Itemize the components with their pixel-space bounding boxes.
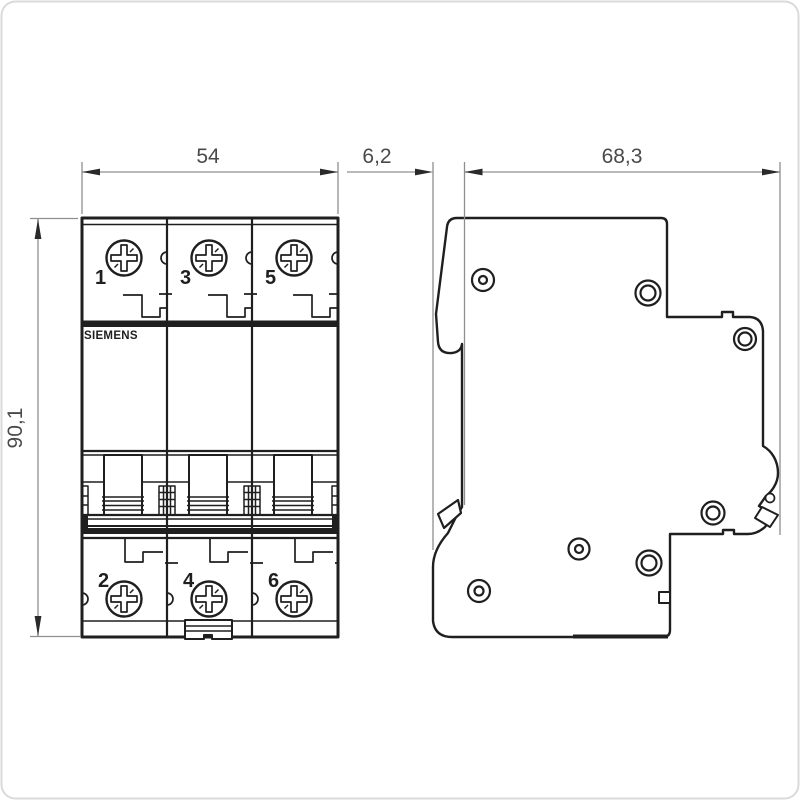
terminal-label-2: 2 [98, 570, 109, 592]
toggle-pivot [766, 494, 775, 503]
dim-rail-depth-label: 6,2 [362, 145, 391, 168]
front-outline [82, 218, 338, 637]
terminal-label-6: 6 [268, 570, 279, 592]
terminal-label-4: 4 [183, 570, 195, 592]
dim-front-height-label: 90,1 [4, 408, 27, 449]
breaker-dimension-drawing: 1 3 5 SIEMENS [0, 0, 800, 800]
dim-total-depth-label: 68,3 [602, 145, 643, 168]
dimension-front-width: 54 [82, 145, 338, 214]
terminal-label-3: 3 [180, 267, 191, 289]
side-tab [659, 592, 670, 603]
terminal-label-5: 5 [265, 267, 276, 289]
terminal-label-1: 1 [95, 267, 106, 289]
side-view [433, 218, 778, 637]
front-top-band [83, 321, 337, 328]
dimension-front-height: 90,1 [4, 219, 80, 637]
front-view: 1 3 5 SIEMENS [82, 218, 338, 639]
side-outline [433, 218, 778, 637]
brand-label: SIEMENS [84, 330, 138, 342]
dim-front-width-label: 54 [196, 145, 220, 168]
technical-drawing-page: 1 3 5 SIEMENS [0, 0, 800, 800]
